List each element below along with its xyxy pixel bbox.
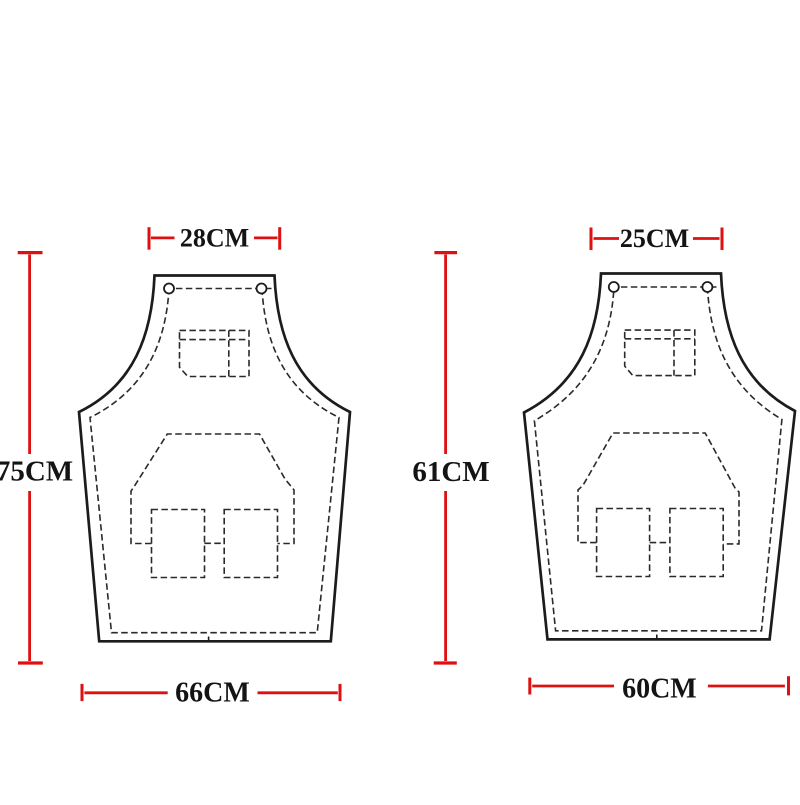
svg-text:25CM: 25CM (620, 224, 689, 253)
svg-text:60CM: 60CM (622, 674, 697, 705)
svg-text:61CM: 61CM (412, 456, 489, 488)
svg-text:28CM: 28CM (180, 224, 249, 253)
svg-text:66CM: 66CM (175, 678, 250, 709)
svg-text:75CM: 75CM (0, 456, 73, 488)
